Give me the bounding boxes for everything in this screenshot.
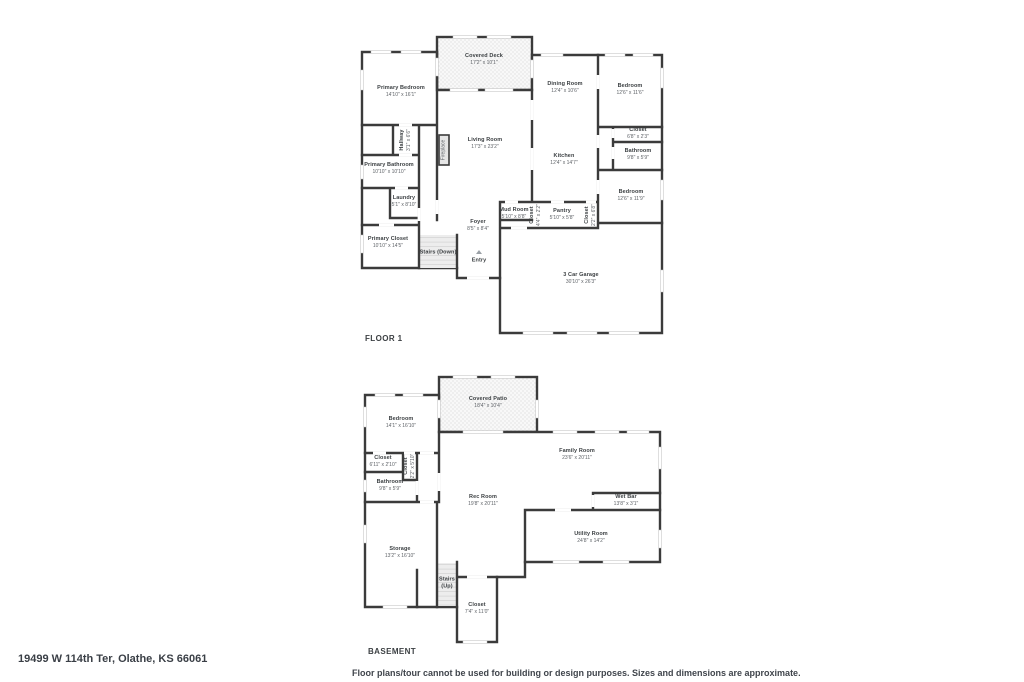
covered-patio-area [439,377,537,432]
floorplan-page: Covered Deck 17'2" x 10'1" Primary Bedro… [0,0,1024,682]
stairs-up-area [438,563,456,606]
basement-plan-drawing [355,375,675,665]
floor1-plan: Covered Deck 17'2" x 10'1" Primary Bedro… [355,30,675,345]
stairs-down-area [419,235,457,268]
fireplace-box [439,135,449,165]
floor1-walls [362,37,662,333]
entry-arrow-icon [476,250,482,254]
floor1-title: FLOOR 1 [365,334,402,343]
property-address: 19499 W 114th Ter, Olathe, KS 66061 [18,653,207,665]
floor1-plan-drawing [355,30,675,345]
basement-plan: Covered Patio 18'4" x 10'4" Bedroom 14'1… [355,375,675,665]
covered-deck-area [437,37,532,90]
disclaimer-text: Floor plans/tour cannot be used for buil… [352,668,801,678]
basement-title: BASEMENT [368,647,416,656]
basement-walls [365,377,660,642]
